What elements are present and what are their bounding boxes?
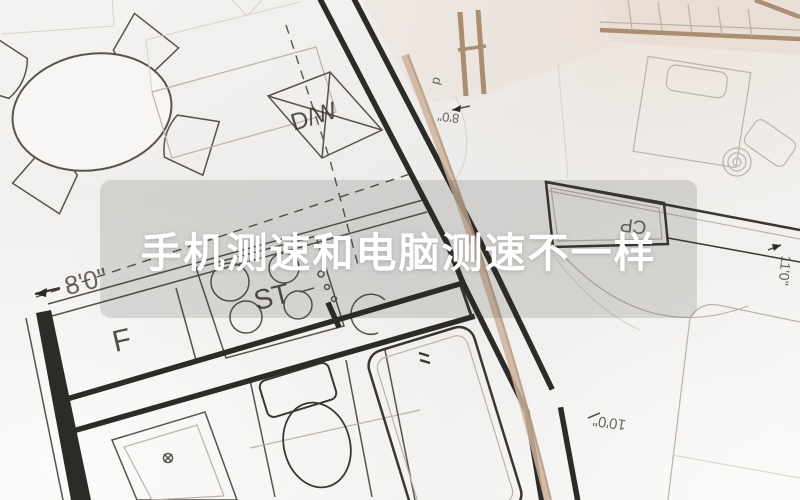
caption-banner: 手机测速和电脑测速不一样 [100, 180, 697, 318]
right-dimension-text: 11'0" [775, 255, 794, 287]
blueprint-photo: D/W ST F 8'0" [0, 0, 800, 500]
caption-text: 手机测速和电脑测速不一样 [141, 219, 657, 279]
top-dimension-text: 8'0" [436, 109, 460, 127]
